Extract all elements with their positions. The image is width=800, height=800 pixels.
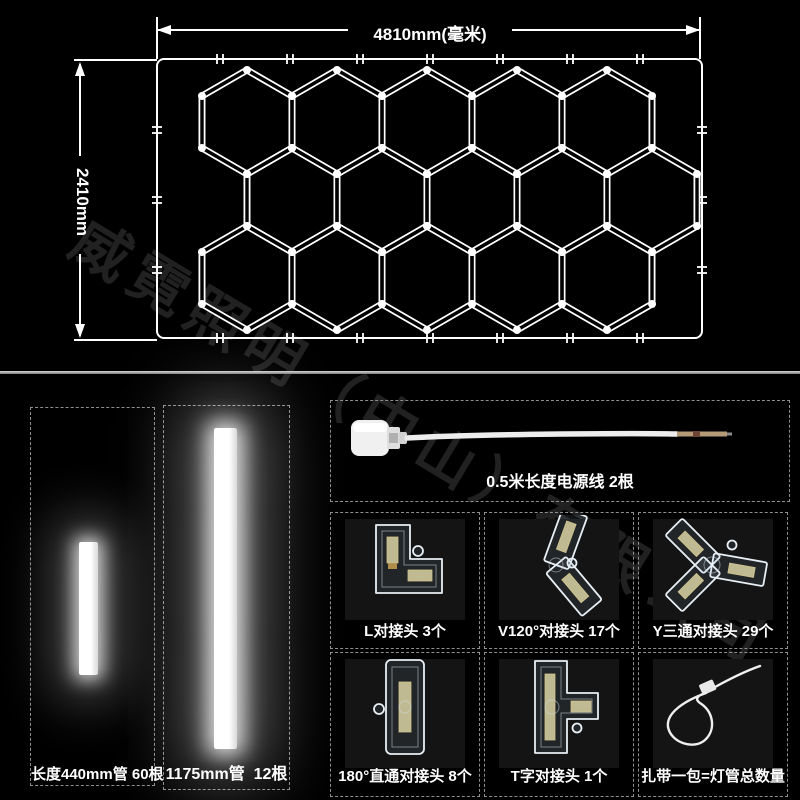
width-dimension-label: 4810mm(毫米) [352,20,508,45]
power-cable-panel: 0.5米长度电源线 2根 [330,400,790,502]
connector-cell-t: T字对接头 1个 [484,652,634,797]
connector-cell-l: L对接头 3个 [330,512,480,649]
honeycomb-diagram [0,0,800,396]
l-connector-icon [330,515,480,617]
y-connector-caption: Y三通对接头 29个 [639,620,787,641]
product-sheet: 威霓照明（中山）有限公司 4810mm(毫米) 2410mm [0,0,800,800]
t-connector-icon [484,655,634,763]
zip-tie-caption: 扎带一包=灯管总数量 [639,765,787,786]
led-tube-440-image [79,542,98,675]
straight-connector-caption: 180°直通对接头 8个 [331,765,479,786]
l-connector-caption: L对接头 3个 [331,620,479,641]
connector-cell-straight: 180°直通对接头 8个 [330,652,480,797]
tube-440-caption: 长度440mm管 60根 [31,763,154,784]
power-cable-caption: 0.5米长度电源线 2根 [331,468,789,492]
hexagon-grid [198,66,701,334]
y-connector-icon [638,515,788,617]
tube-440-panel: 长度440mm管 60根 [30,407,155,786]
straight-connector-icon [330,655,480,763]
connector-cell-v120: V120°对接头 17个 [484,512,634,649]
connector-cell-y: Y三通对接头 29个 [638,512,788,649]
connector-cell-ziptie: 扎带一包=灯管总数量 [638,652,788,797]
tube-1175-panel: 1175mm管 12根 [163,405,290,790]
v120-connector-icon [484,515,634,617]
height-dimension-label: 2410mm [68,142,92,262]
section-divider [0,371,800,374]
v120-connector-caption: V120°对接头 17个 [485,620,633,641]
led-tube-1175-image [214,428,237,749]
tube-1175-caption: 1175mm管 12根 [164,760,289,784]
t-connector-caption: T字对接头 1个 [485,765,633,786]
zip-tie-icon [638,655,788,763]
power-cable-image [331,403,789,473]
